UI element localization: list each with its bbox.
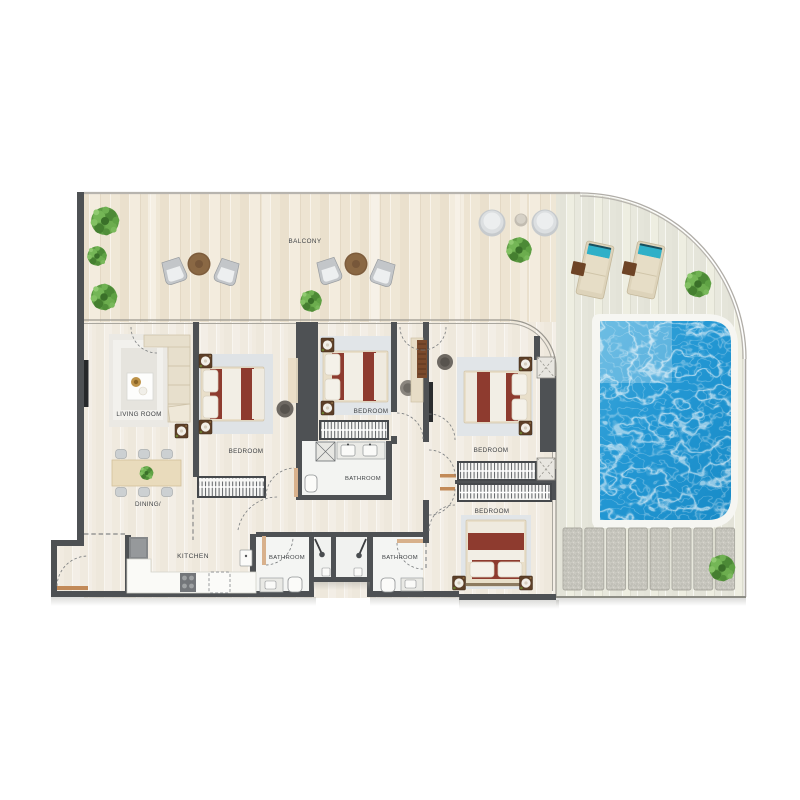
svg-text:KITCHEN: KITCHEN — [177, 553, 209, 560]
svg-text:BEDROOM: BEDROOM — [229, 448, 264, 455]
svg-text:BEDROOM: BEDROOM — [474, 447, 509, 454]
svg-text:BALCONY: BALCONY — [289, 238, 322, 245]
svg-text:DINING/: DINING/ — [135, 501, 161, 508]
svg-text:BATHROOM: BATHROOM — [269, 555, 305, 561]
svg-text:LIVING ROOM: LIVING ROOM — [116, 411, 161, 418]
svg-text:BEDROOM: BEDROOM — [354, 408, 389, 415]
svg-text:BEDROOM: BEDROOM — [475, 508, 510, 515]
svg-text:BATHROOM: BATHROOM — [382, 555, 418, 561]
svg-text:BATHROOM: BATHROOM — [345, 476, 381, 482]
